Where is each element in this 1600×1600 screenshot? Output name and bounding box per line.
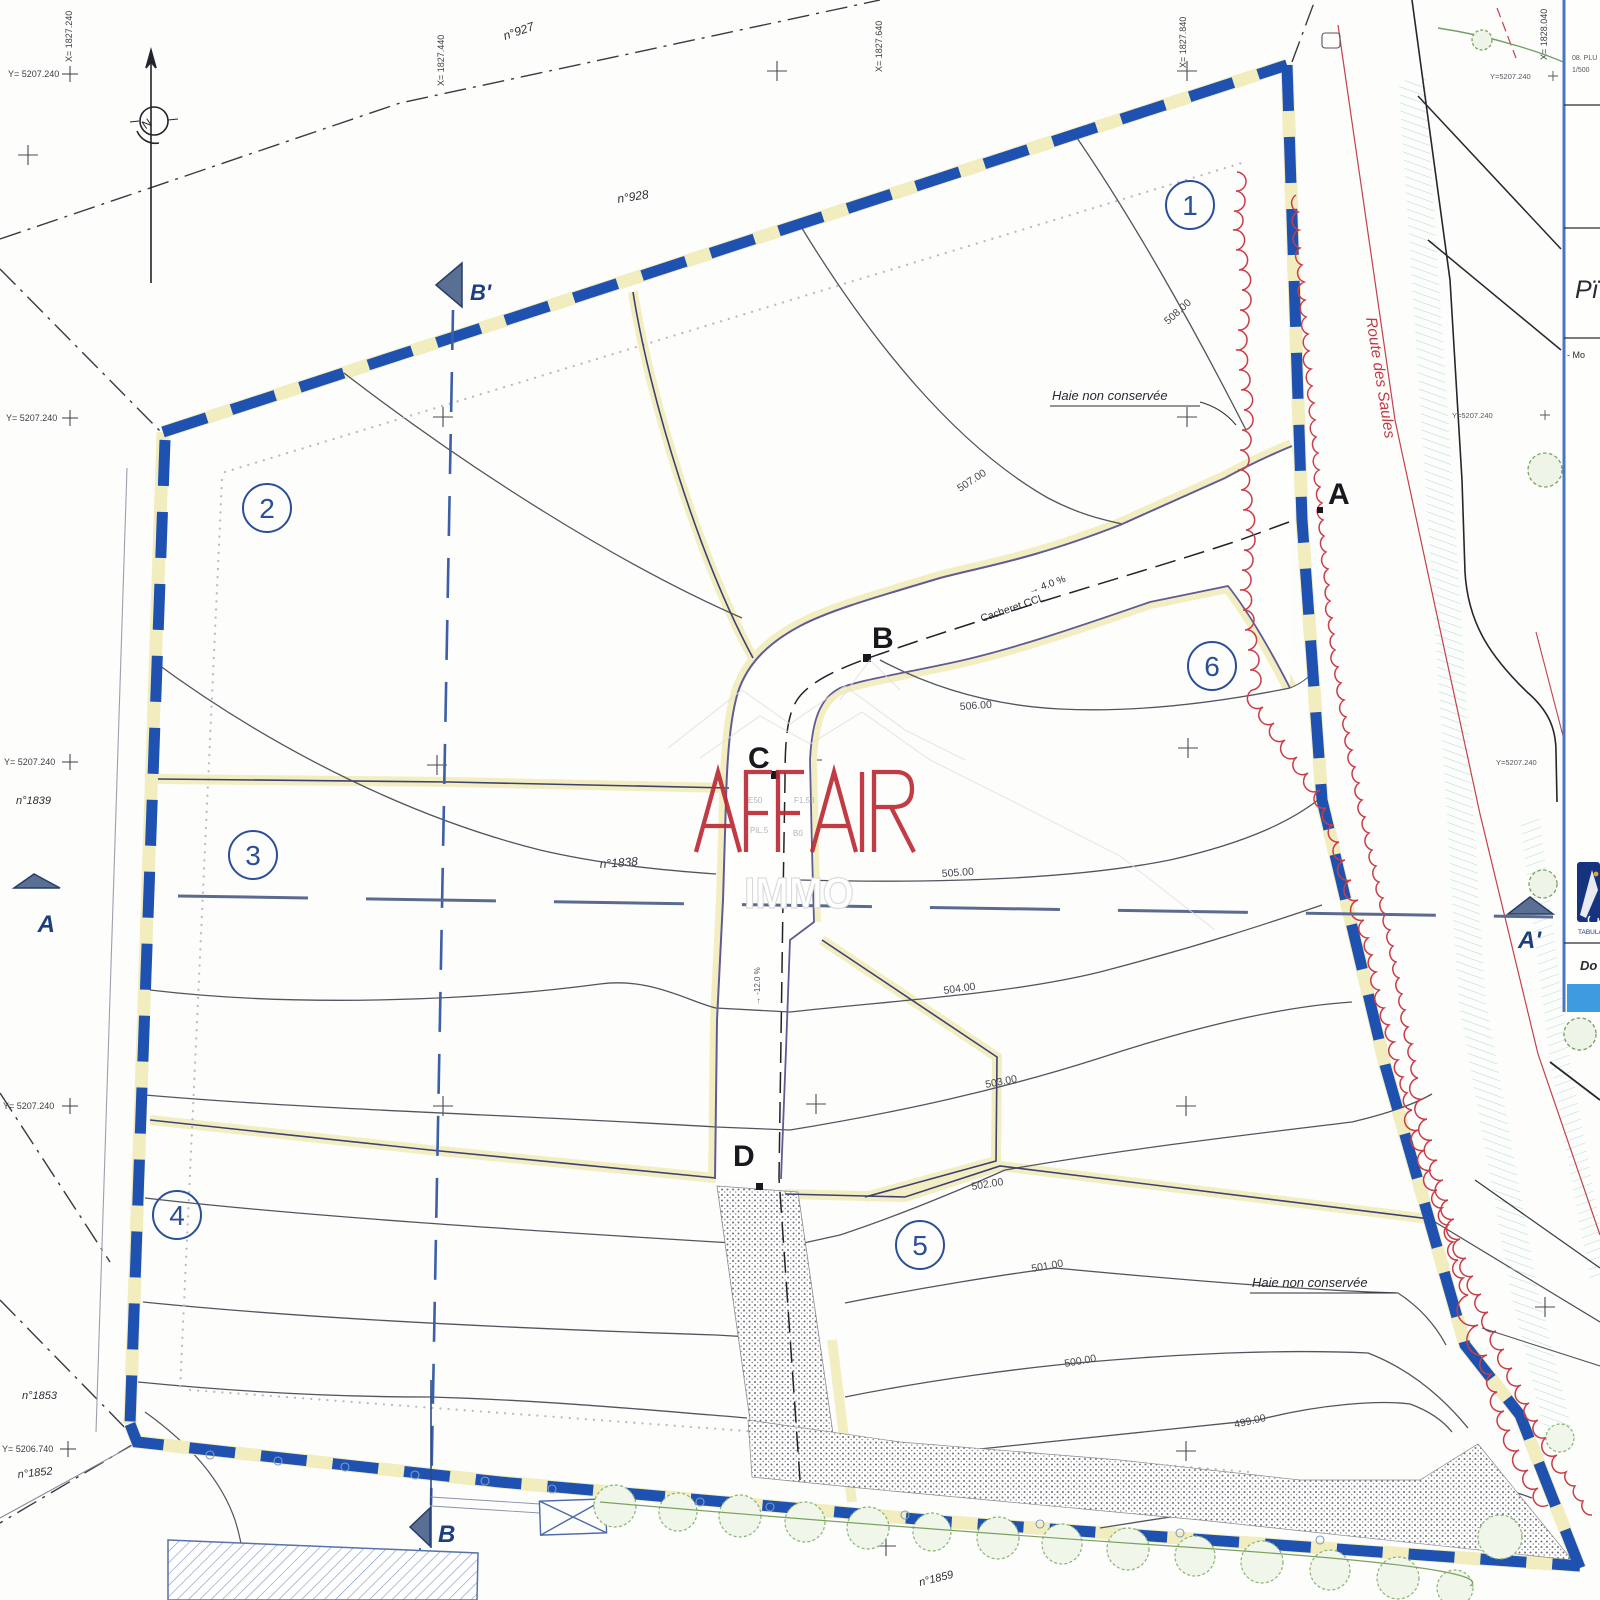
- svg-text:A: A: [1328, 478, 1350, 511]
- svg-text:506.00: 506.00: [959, 699, 992, 713]
- svg-text:1: 1: [1182, 190, 1198, 221]
- svg-text:D: D: [733, 1140, 755, 1173]
- svg-text:Y=5207.240: Y=5207.240: [1496, 758, 1537, 767]
- svg-text:Y= 5207.240: Y= 5207.240: [6, 413, 57, 423]
- svg-text:Y= 5207.240: Y= 5207.240: [4, 757, 55, 767]
- svg-text:B': B': [470, 280, 492, 305]
- svg-text:X= 1827.640: X= 1827.640: [874, 21, 884, 72]
- svg-text:3: 3: [245, 840, 261, 871]
- svg-text:2: 2: [259, 493, 275, 524]
- svg-text:A': A': [1517, 927, 1542, 954]
- svg-text:6: 6: [1204, 651, 1220, 682]
- svg-text:IMMO: IMMO: [744, 869, 854, 918]
- svg-text:B: B: [438, 1521, 455, 1548]
- svg-text:Do: Do: [1580, 958, 1597, 973]
- svg-text:Y=5207.240: Y=5207.240: [1452, 411, 1493, 420]
- svg-text:505.00: 505.00: [941, 866, 974, 880]
- svg-text:X= 1827.440: X= 1827.440: [436, 35, 446, 86]
- svg-text:TABULA: TABULA: [1578, 929, 1600, 936]
- svg-text:n°1853: n°1853: [22, 1390, 58, 1402]
- svg-text:- Mo: - Mo: [1567, 350, 1585, 360]
- svg-text:X= 1827.240: X= 1827.240: [64, 11, 74, 62]
- svg-text:Y= 5207.240: Y= 5207.240: [3, 1101, 54, 1111]
- svg-text:X= 1827.840: X= 1827.840: [1178, 17, 1188, 68]
- svg-text:Y= 5207.240: Y= 5207.240: [8, 69, 59, 79]
- svg-text:E50: E50: [748, 796, 763, 805]
- svg-text:Pï: Pï: [1575, 276, 1600, 304]
- svg-text:n°1839: n°1839: [16, 795, 51, 807]
- svg-text:Haie non conservée: Haie non conservée: [1052, 388, 1168, 403]
- svg-text:F1.58: F1.58: [794, 796, 815, 805]
- svg-text:PiL.5: PiL.5: [750, 826, 769, 835]
- svg-text:08. PLU: 08. PLU: [1572, 55, 1597, 62]
- svg-text:X= 1828.040: X= 1828.040: [1539, 9, 1549, 60]
- svg-text:Y=5207.240: Y=5207.240: [1490, 72, 1531, 81]
- svg-text:1/500: 1/500: [1572, 67, 1590, 74]
- svg-text:B: B: [872, 622, 894, 655]
- svg-text:→ -12.0 %: → -12.0 %: [753, 967, 762, 1005]
- svg-text:Haie non conservée: Haie non conservée: [1252, 1275, 1368, 1290]
- svg-text:4: 4: [169, 1200, 185, 1231]
- svg-text:5: 5: [912, 1230, 928, 1261]
- svg-text:Y= 5206.740: Y= 5206.740: [2, 1444, 53, 1454]
- svg-text:B0: B0: [793, 829, 803, 838]
- svg-text:A: A: [37, 911, 55, 938]
